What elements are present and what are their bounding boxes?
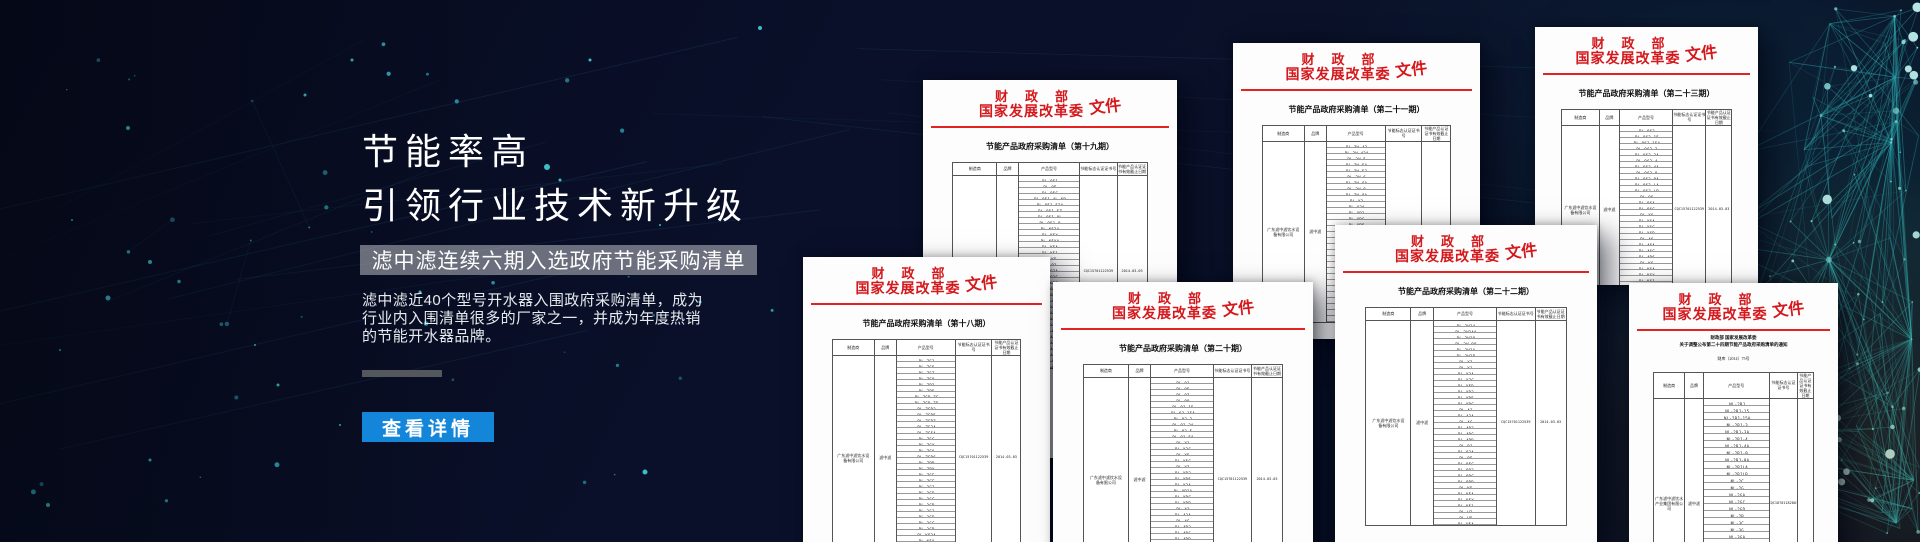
hero-banner: 财政部国家发展改革委文件节能产品政府采购清单（第十八期）制造商品牌产品型号节能标… <box>0 0 1920 542</box>
hero-copy: 节能率高 引领行业技术新升级 滤中滤连续六期入选政府节能采购清单 滤中滤近40个… <box>0 0 1920 542</box>
hero-description-line: 行业内入围清单很多的厂家之一，并成为年度热销 <box>362 310 762 328</box>
hero-description-line: 的节能开水器品牌。 <box>362 328 762 346</box>
hero-description: 滤中滤近40个型号开水器入围政府采购清单，成为 行业内入围清单很多的厂家之一，并… <box>362 292 762 346</box>
hero-title-line1: 节能率高 <box>362 134 534 170</box>
divider-bar <box>362 370 442 377</box>
view-details-button[interactable]: 查看详情 <box>362 412 494 442</box>
hero-description-line: 滤中滤近40个型号开水器入围政府采购清单，成为 <box>362 292 762 310</box>
hero-title-line2: 引领行业技术新升级 <box>362 188 749 224</box>
badge-banner: 滤中滤连续六期入选政府节能采购清单 <box>360 245 757 275</box>
